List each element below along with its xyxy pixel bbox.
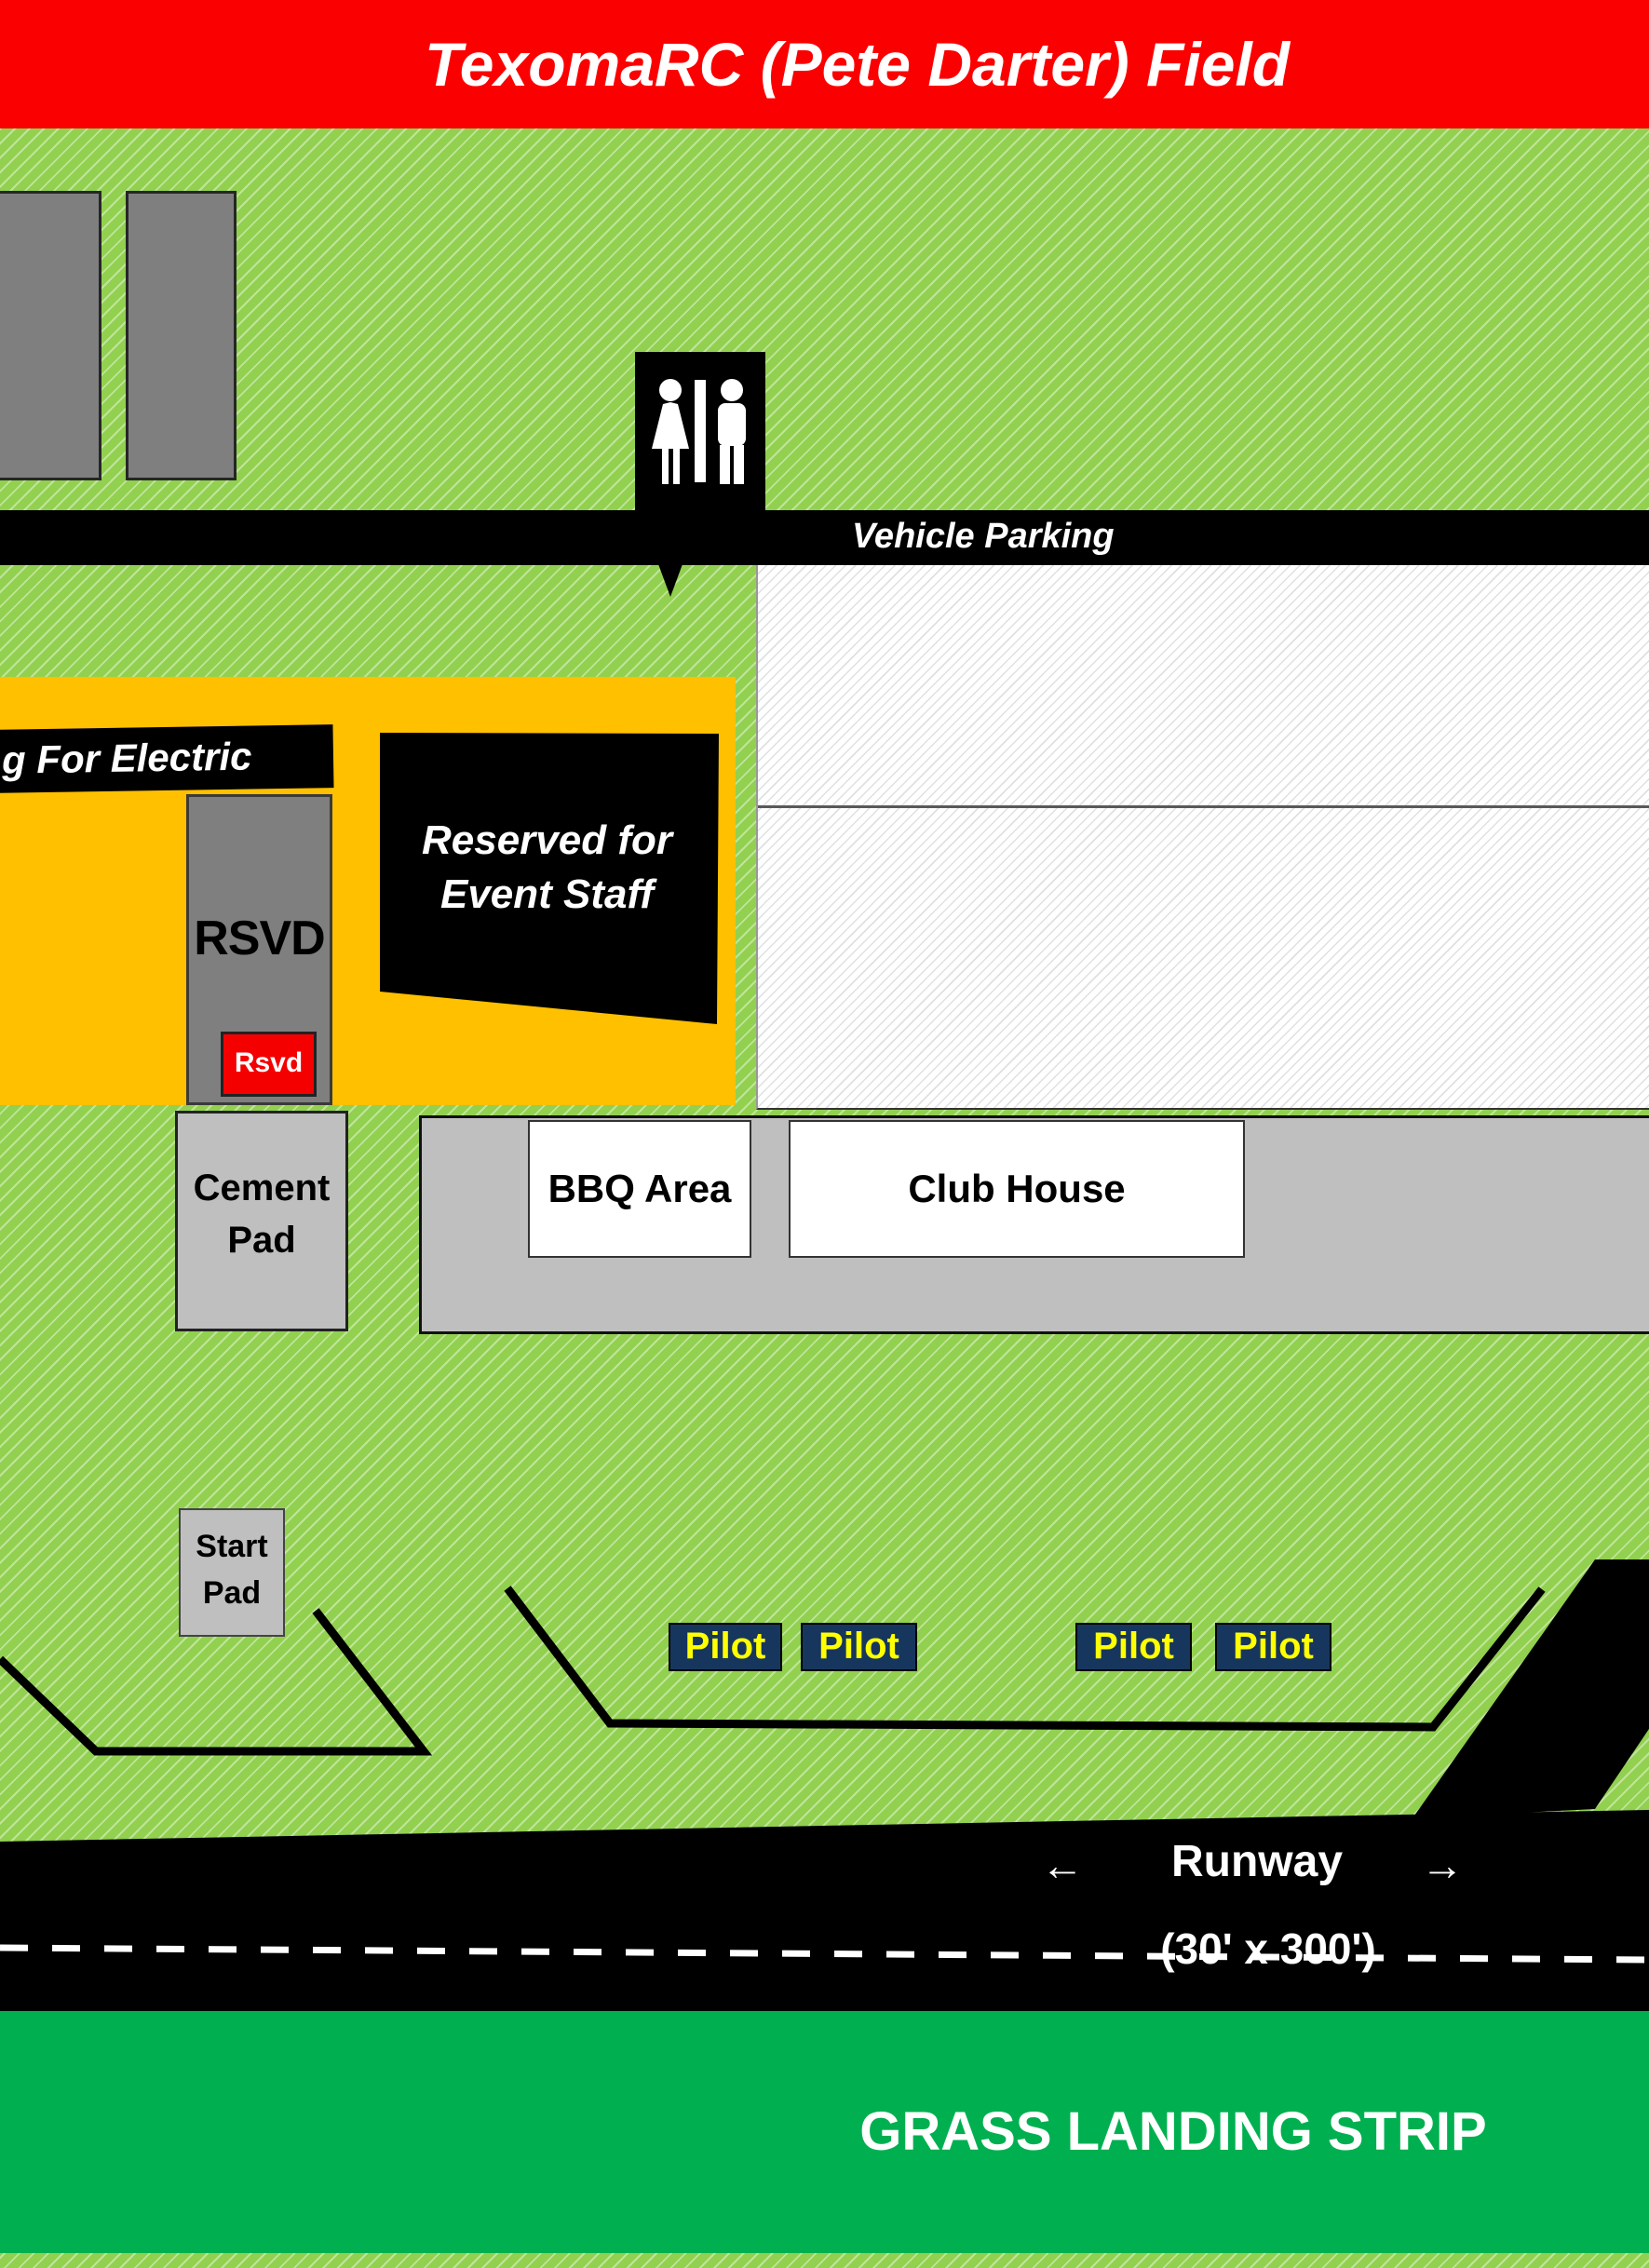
pilot-station-1: Pilot [669,1623,782,1671]
pilot-station-4: Pilot [1215,1623,1331,1671]
rsvd-label: RSVD [186,911,332,966]
vehicle-parking-label: Vehicle Parking [852,510,1115,565]
man-icon [718,379,746,484]
restroom-pointer [658,564,683,597]
header-banner: TexomaRC (Pete Darter) Field [0,0,1649,128]
restroom-icons [635,352,765,510]
restroom-divider-icon [695,380,706,482]
parking-lot [756,565,1649,1110]
taxiway [1412,1559,1649,1818]
woman-icon [652,379,689,484]
field-map: TexomaRC (Pete Darter) Field Vehicle Par… [0,0,1649,2268]
bbq-area: BBQ Area [528,1120,751,1258]
rsvd-badge-label: Rsvd [223,1034,314,1092]
rsvd-badge: Rsvd [221,1032,317,1097]
parking-stall [0,191,101,480]
page-title: TexomaRC (Pete Darter) Field [0,0,1649,128]
start-pad: Start Pad [179,1508,285,1637]
grass-landing-strip-label: GRASS LANDING STRIP [652,2011,1649,2253]
pit-boundary-right [507,1588,1542,1727]
electric-parking-sign: g For Electric [0,724,334,793]
club-house: Club House [789,1120,1245,1258]
runway-arrow-left-icon: ← [1041,1840,1084,1890]
runway [0,1810,1649,2011]
electric-parking-label: g For Electric [0,724,333,791]
parking-row-divider [758,805,1649,808]
vehicle-parking-bar [0,510,1649,565]
cement-pad: Cement Pad [175,1111,348,1331]
pilot-station-2: Pilot [801,1623,917,1671]
runway-arrow-right-icon: → [1421,1840,1464,1890]
runway-label: Runway [1145,1836,1369,1887]
restroom-sign [635,352,765,512]
runway-dimensions: (30' x 300') [1129,1924,1408,1974]
pilot-station-3: Pilot [1075,1623,1192,1671]
parking-stall [126,191,237,480]
reserved-event-staff-label: Reserved for Event Staff [386,814,708,922]
building-strip: BBQ Area Club House [419,1115,1649,1334]
